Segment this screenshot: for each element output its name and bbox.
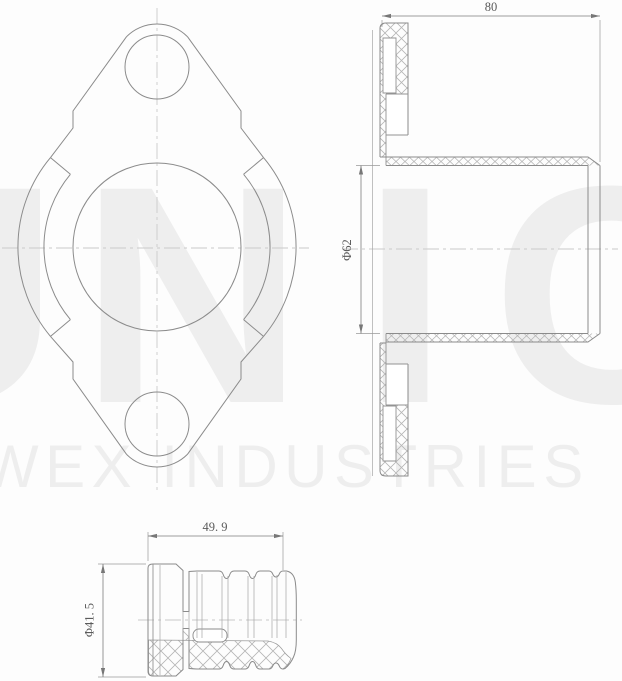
section-windows [383, 38, 408, 461]
cad-drawing-canvas: 80 Φ62 [0, 0, 622, 681]
bumper-section-view: 49. 9 Φ41. 5 [83, 520, 303, 677]
dim-bumper-diameter: Φ41. 5 [83, 564, 147, 677]
technical-drawing-sheet: U N I C WEX INDUSTRIES [0, 0, 622, 681]
section-outline [380, 23, 600, 476]
dim-62-label: Φ62 [340, 239, 354, 261]
dim-49-label: 49. 9 [203, 520, 228, 534]
dim-flange-width: 80 [382, 0, 600, 162]
front-view-centerlines [2, 8, 309, 492]
dim-80-label: 80 [485, 0, 498, 14]
dim-bore-diameter: Φ62 [340, 166, 380, 334]
dim-bumper-length: 49. 9 [148, 520, 283, 570]
flange-front-view [2, 8, 309, 492]
flange-section-view: 80 Φ62 [340, 0, 618, 476]
dim-41-label: Φ41. 5 [83, 603, 97, 637]
section-hatching [380, 23, 600, 476]
